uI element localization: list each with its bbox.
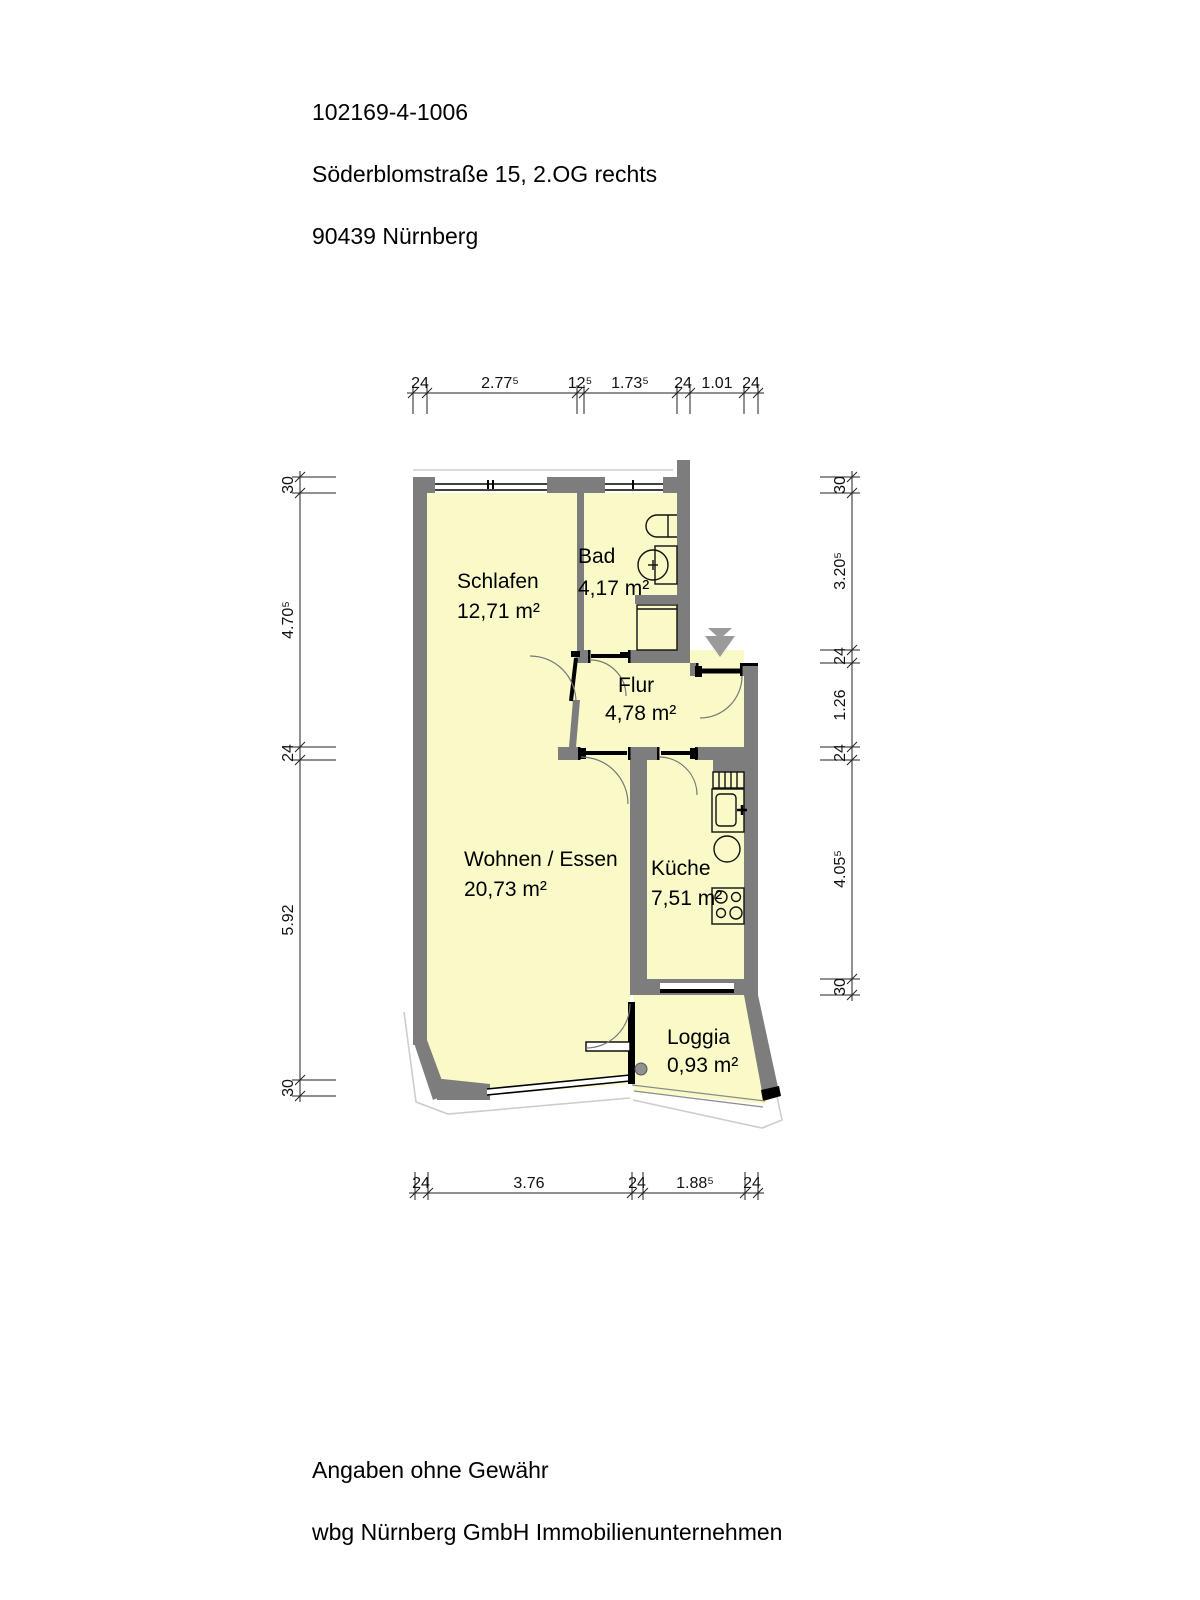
- dim-label: 4.05⁵: [832, 850, 849, 888]
- dimension-top: 24 2.77⁵ 12⁵ 1.73⁵ 24 1.01 24: [407, 375, 764, 414]
- dim-label: 24: [411, 375, 429, 392]
- downpipe: [635, 1063, 647, 1075]
- flur-area: 4,78 m²: [605, 702, 676, 725]
- schlafen-area: 12,71 m²: [457, 600, 540, 623]
- dim-label: 24: [832, 744, 849, 762]
- dim-label: 12⁵: [568, 375, 592, 392]
- room-bad: [584, 493, 677, 650]
- dim-label: 1.01: [701, 375, 732, 392]
- dim-label: 30: [280, 476, 297, 494]
- loggia-label: Loggia: [667, 1026, 730, 1049]
- dim-label: 3.20⁵: [832, 552, 849, 590]
- flur-label: Flur: [618, 674, 654, 697]
- disclaimer-block: Angaben ohne Gewähr wbg Nürnberg GmbH Im…: [312, 1424, 782, 1579]
- dim-label: 1.26: [832, 689, 849, 720]
- dim-label: 1.73⁵: [611, 375, 649, 392]
- kueche-label: Küche: [651, 857, 711, 880]
- dim-label: 3.76: [513, 1175, 544, 1192]
- dimension-left: 30 4.70⁵ 24 5.92 30: [280, 471, 336, 1102]
- floor-plan: 24 2.77⁵ 12⁵ 1.73⁵ 24 1.01 24 30 4.70⁵ 2…: [0, 0, 1200, 1600]
- bad-area: 4,17 m²: [578, 577, 649, 600]
- dim-label: 5.92: [280, 904, 297, 935]
- dim-label: 30: [832, 978, 849, 996]
- schlafen-label: Schlafen: [457, 570, 539, 593]
- dim-label: 24: [280, 744, 297, 762]
- dim-label: 1.88⁵: [676, 1175, 714, 1192]
- dimension-bottom: 24 3.76 24 1.88⁵ 24: [409, 1172, 764, 1200]
- bad-window: [605, 477, 663, 493]
- dim-label: 30: [832, 476, 849, 494]
- dim-label: 24: [832, 647, 849, 665]
- dim-label: 30: [280, 1079, 297, 1097]
- disclaimer-text: Angaben ohne Gewähr: [312, 1455, 782, 1486]
- dim-label: 4.70⁵: [280, 601, 297, 639]
- schlafen-window: [435, 477, 547, 493]
- dim-label: 24: [628, 1175, 646, 1192]
- wohnen-area: 20,73 m²: [464, 878, 547, 901]
- dimension-right: 30 3.20⁵ 24 1.26 24 4.05⁵ 30: [820, 471, 860, 1001]
- dim-label: 24: [412, 1175, 430, 1192]
- company-name: wbg Nürnberg GmbH Immobilienunternehmen: [312, 1517, 782, 1548]
- dim-label: 2.77⁵: [481, 375, 519, 392]
- dim-label: 24: [674, 375, 692, 392]
- wohnen-label: Wohnen / Essen: [464, 848, 618, 871]
- dim-label: 24: [742, 375, 760, 392]
- loggia-area: 0,93 m²: [667, 1054, 738, 1077]
- kueche-area: 7,51 m²: [651, 887, 722, 910]
- bad-label: Bad: [578, 545, 615, 568]
- dim-label: 24: [743, 1175, 761, 1192]
- kueche-window: [660, 983, 734, 993]
